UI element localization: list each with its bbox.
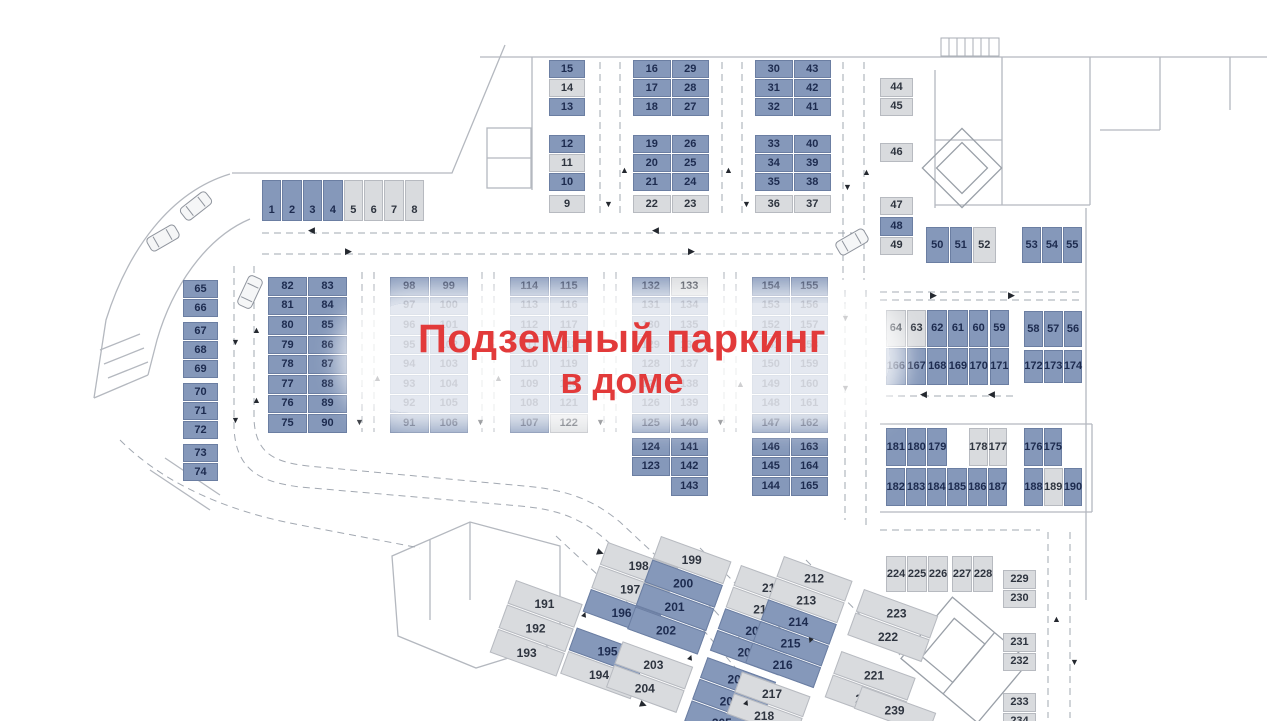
parking-spot-133[interactable]: 133 bbox=[671, 277, 709, 296]
direction-arrow: ▼ bbox=[604, 200, 613, 209]
parking-spot-number: 10 bbox=[561, 177, 573, 188]
parking-spot-85[interactable]: 85 bbox=[308, 316, 347, 335]
parking-spot-number: 11 bbox=[561, 158, 573, 169]
parking-spot-number: 41 bbox=[806, 102, 818, 113]
parking-spot-63[interactable]: 63 bbox=[907, 310, 927, 347]
parking-spot-65[interactable]: 65 bbox=[183, 280, 218, 298]
parking-spot-number: 147 bbox=[762, 418, 780, 429]
parking-spot-number: 195 bbox=[598, 646, 618, 658]
parking-spot-165[interactable]: 165 bbox=[791, 477, 829, 496]
parking-spot-122[interactable]: 122 bbox=[550, 414, 589, 433]
parking-spot-86[interactable]: 86 bbox=[308, 336, 347, 355]
parking-spot-number: 168 bbox=[928, 361, 946, 372]
parking-spot-163[interactable]: 163 bbox=[791, 438, 829, 457]
parking-spot-4[interactable]: 4 bbox=[323, 180, 342, 221]
parking-spot-48[interactable]: 48 bbox=[880, 217, 913, 236]
parking-spot-167[interactable]: 167 bbox=[907, 348, 927, 385]
parking-spot-82[interactable]: 82 bbox=[268, 277, 307, 296]
parking-spot-182[interactable]: 182 bbox=[886, 468, 905, 506]
parking-spot-number: 197 bbox=[621, 584, 641, 596]
parking-spot-5[interactable]: 5 bbox=[344, 180, 363, 221]
direction-arrow: ▲ bbox=[252, 326, 261, 335]
parking-spot-168[interactable]: 168 bbox=[927, 348, 947, 385]
parking-spot-124[interactable]: 124 bbox=[632, 438, 670, 457]
parking-spot-52[interactable]: 52 bbox=[973, 227, 996, 263]
parking-spot-number: 72 bbox=[194, 425, 206, 436]
parking-spot-88[interactable]: 88 bbox=[308, 375, 347, 394]
direction-arrow: ◀ bbox=[920, 390, 927, 399]
parking-spot-114[interactable]: 114 bbox=[510, 277, 549, 296]
parking-spot-number: 185 bbox=[948, 482, 966, 493]
parking-spot-number: 189 bbox=[1044, 482, 1062, 493]
parking-spot-181[interactable]: 181 bbox=[886, 428, 906, 466]
parking-spot-6[interactable]: 6 bbox=[364, 180, 383, 221]
parking-spot-number: 45 bbox=[890, 101, 902, 112]
parking-spot-number: 32 bbox=[768, 102, 780, 113]
parking-spot-number: 54 bbox=[1046, 240, 1058, 251]
parking-spot-227[interactable]: 227 bbox=[952, 556, 972, 592]
parking-spot-172[interactable]: 172 bbox=[1024, 350, 1043, 383]
parking-spot-76[interactable]: 76 bbox=[268, 395, 307, 414]
parking-spot-15[interactable]: 15 bbox=[549, 60, 585, 78]
parking-spot-8[interactable]: 8 bbox=[405, 180, 424, 221]
direction-arrow: ▼ bbox=[1070, 658, 1079, 667]
parking-spot-number: 7 bbox=[391, 205, 397, 220]
parking-spot-19[interactable]: 19 bbox=[633, 135, 671, 153]
parking-spot-number: 24 bbox=[684, 177, 696, 188]
parking-spot-54[interactable]: 54 bbox=[1042, 227, 1061, 263]
parking-spot-9[interactable]: 9 bbox=[549, 195, 585, 213]
parking-spot-90[interactable]: 90 bbox=[308, 414, 347, 433]
parking-spot-number: 89 bbox=[321, 398, 333, 409]
parking-spot-number: 214 bbox=[789, 616, 809, 628]
parking-spot-146[interactable]: 146 bbox=[752, 438, 790, 457]
parking-spot-46[interactable]: 46 bbox=[880, 143, 913, 162]
parking-spot-53[interactable]: 53 bbox=[1022, 227, 1041, 263]
parking-spot-2[interactable]: 2 bbox=[282, 180, 301, 221]
parking-spot-number: 233 bbox=[1010, 697, 1028, 708]
parking-spot-98[interactable]: 98 bbox=[390, 277, 429, 296]
parking-spot-number: 65 bbox=[194, 284, 206, 295]
parking-spot-number: 13 bbox=[561, 102, 573, 113]
parking-spot-number: 226 bbox=[929, 569, 947, 580]
parking-spot-67[interactable]: 67 bbox=[183, 322, 218, 340]
parking-spot-number: 141 bbox=[680, 442, 698, 453]
parking-spot-7[interactable]: 7 bbox=[384, 180, 403, 221]
parking-spot-number: 63 bbox=[910, 323, 922, 334]
parking-spot-number: 40 bbox=[806, 139, 818, 150]
parking-spot-number: 194 bbox=[589, 669, 609, 681]
parking-spot-141[interactable]: 141 bbox=[671, 438, 709, 457]
parking-spot-number: 73 bbox=[194, 448, 206, 459]
parking-spot-91[interactable]: 91 bbox=[390, 414, 429, 433]
parking-spot-228[interactable]: 228 bbox=[973, 556, 993, 592]
parking-spot-27[interactable]: 27 bbox=[672, 98, 710, 116]
parking-spot-178[interactable]: 178 bbox=[969, 428, 988, 466]
parking-spot-number: 2 bbox=[289, 205, 295, 220]
parking-spot-190[interactable]: 190 bbox=[1064, 468, 1083, 506]
parking-spot-132[interactable]: 132 bbox=[632, 277, 670, 296]
parking-spot-31[interactable]: 31 bbox=[755, 79, 793, 97]
parking-spot-number: 174 bbox=[1064, 361, 1082, 372]
parking-spot-number: 228 bbox=[974, 569, 992, 580]
parking-spot-1[interactable]: 1 bbox=[262, 180, 281, 221]
parking-spot-number: 91 bbox=[403, 418, 415, 429]
parking-spot-number: 143 bbox=[680, 481, 698, 492]
parking-spot-24[interactable]: 24 bbox=[672, 173, 710, 191]
parking-spot-number: 144 bbox=[762, 481, 780, 492]
parking-spot-229[interactable]: 229 bbox=[1003, 570, 1036, 589]
parking-spot-number: 17 bbox=[646, 83, 658, 94]
parking-spot-number: 66 bbox=[194, 303, 206, 314]
parking-spot-35[interactable]: 35 bbox=[755, 173, 793, 191]
parking-spot-145[interactable]: 145 bbox=[752, 457, 790, 476]
parking-spot-number: 23 bbox=[684, 199, 696, 210]
parking-spot-78[interactable]: 78 bbox=[268, 355, 307, 374]
parking-spot-175[interactable]: 175 bbox=[1044, 428, 1063, 466]
parking-spot-224[interactable]: 224 bbox=[886, 556, 906, 592]
direction-arrow: ▼ bbox=[742, 200, 751, 209]
parking-spot-number: 67 bbox=[194, 326, 206, 337]
parking-spot-68[interactable]: 68 bbox=[183, 341, 218, 359]
parking-spot-164[interactable]: 164 bbox=[791, 457, 829, 476]
parking-spot-73[interactable]: 73 bbox=[183, 444, 218, 462]
parking-spot-70[interactable]: 70 bbox=[183, 383, 218, 401]
parking-spot-number: 42 bbox=[806, 83, 818, 94]
parking-spot-72[interactable]: 72 bbox=[183, 421, 218, 439]
parking-spot-37[interactable]: 37 bbox=[794, 195, 832, 213]
parking-spot-number: 78 bbox=[281, 359, 293, 370]
parking-spot-180[interactable]: 180 bbox=[907, 428, 927, 466]
parking-spot-32[interactable]: 32 bbox=[755, 98, 793, 116]
parking-spot-179[interactable]: 179 bbox=[927, 428, 947, 466]
parking-spot-170[interactable]: 170 bbox=[969, 348, 989, 385]
parking-spot-18[interactable]: 18 bbox=[633, 98, 671, 116]
parking-spot-231[interactable]: 231 bbox=[1003, 633, 1036, 652]
parking-spot-49[interactable]: 49 bbox=[880, 237, 913, 256]
parking-spot-number: 8 bbox=[411, 205, 417, 220]
parking-spot-number: 225 bbox=[908, 569, 926, 580]
parking-spot-42[interactable]: 42 bbox=[794, 79, 832, 97]
parking-spot-33[interactable]: 33 bbox=[755, 135, 793, 153]
parking-spot-125[interactable]: 125 bbox=[632, 414, 670, 433]
parking-spot-47[interactable]: 47 bbox=[880, 197, 913, 216]
parking-spot-39[interactable]: 39 bbox=[794, 154, 832, 172]
parking-spot-59[interactable]: 59 bbox=[990, 310, 1010, 347]
parking-spot-183[interactable]: 183 bbox=[906, 468, 925, 506]
parking-spot-number: 6 bbox=[371, 205, 377, 220]
parking-spot-number: 79 bbox=[281, 340, 293, 351]
parking-spot-number: 199 bbox=[682, 554, 702, 566]
parking-spot-number: 230 bbox=[1010, 593, 1028, 604]
parking-spot-number: 163 bbox=[800, 442, 818, 453]
parking-spot-74[interactable]: 74 bbox=[183, 463, 218, 481]
parking-spot-99[interactable]: 99 bbox=[430, 277, 469, 296]
parking-spot-number: 203 bbox=[644, 659, 664, 671]
parking-spot-20[interactable]: 20 bbox=[633, 154, 671, 172]
parking-spot-number: 29 bbox=[684, 64, 696, 75]
parking-spot-number: 20 bbox=[646, 158, 658, 169]
parking-spot-81[interactable]: 81 bbox=[268, 297, 307, 316]
parking-spot-45[interactable]: 45 bbox=[880, 98, 913, 117]
parking-spot-226[interactable]: 226 bbox=[928, 556, 948, 592]
direction-arrow: ▼ bbox=[596, 418, 605, 427]
parking-spot-number: 176 bbox=[1024, 442, 1042, 453]
parking-spot-142[interactable]: 142 bbox=[671, 457, 709, 476]
parking-spot-23[interactable]: 23 bbox=[672, 195, 710, 213]
parking-spot-77[interactable]: 77 bbox=[268, 375, 307, 394]
parking-spot-40[interactable]: 40 bbox=[794, 135, 832, 153]
parking-spot-188[interactable]: 188 bbox=[1024, 468, 1043, 506]
parking-spot-number: 82 bbox=[281, 281, 293, 292]
parking-spot-number: 221 bbox=[864, 670, 884, 682]
parking-spot-115[interactable]: 115 bbox=[550, 277, 589, 296]
parking-spot-10[interactable]: 10 bbox=[549, 173, 585, 191]
parking-spot-58[interactable]: 58 bbox=[1024, 311, 1043, 347]
parking-spot-number: 55 bbox=[1066, 240, 1078, 251]
parking-spot-60[interactable]: 60 bbox=[969, 310, 989, 347]
parking-spot-55[interactable]: 55 bbox=[1063, 227, 1082, 263]
parking-spot-number: 202 bbox=[656, 625, 676, 637]
parking-spot-number: 201 bbox=[665, 601, 685, 613]
direction-arrow: ▼ bbox=[476, 418, 485, 427]
parking-spot-187[interactable]: 187 bbox=[988, 468, 1007, 506]
parking-spot-87[interactable]: 87 bbox=[308, 355, 347, 374]
parking-spot-number: 125 bbox=[642, 418, 660, 429]
parking-spot-29[interactable]: 29 bbox=[672, 60, 710, 78]
parking-spot-14[interactable]: 14 bbox=[549, 79, 585, 97]
parking-spot-162[interactable]: 162 bbox=[791, 414, 829, 433]
parking-spot-number: 107 bbox=[520, 418, 538, 429]
parking-spot-number: 37 bbox=[806, 199, 818, 210]
parking-spot-186[interactable]: 186 bbox=[968, 468, 987, 506]
parking-spot-25[interactable]: 25 bbox=[672, 154, 710, 172]
parking-spot-51[interactable]: 51 bbox=[950, 227, 973, 263]
parking-spot-number: 231 bbox=[1010, 637, 1028, 648]
parking-spot-number: 81 bbox=[281, 300, 293, 311]
parking-spot-number: 198 bbox=[629, 560, 649, 572]
parking-spot-number: 22 bbox=[646, 199, 658, 210]
parking-spot-number: 30 bbox=[768, 64, 780, 75]
parking-spot-number: 60 bbox=[973, 323, 985, 334]
direction-arrow: ▶ bbox=[345, 247, 352, 256]
parking-spot-57[interactable]: 57 bbox=[1044, 311, 1063, 347]
parking-spot-44[interactable]: 44 bbox=[880, 78, 913, 97]
parking-spot-number: 227 bbox=[953, 569, 971, 580]
parking-spot-number: 62 bbox=[931, 323, 943, 334]
parking-spot-34[interactable]: 34 bbox=[755, 154, 793, 172]
parking-spot-232[interactable]: 232 bbox=[1003, 653, 1036, 672]
parking-spot-83[interactable]: 83 bbox=[308, 277, 347, 296]
parking-spot-number: 56 bbox=[1067, 324, 1079, 335]
parking-spot-number: 90 bbox=[321, 418, 333, 429]
parking-spot-233[interactable]: 233 bbox=[1003, 693, 1036, 712]
parking-spot-38[interactable]: 38 bbox=[794, 173, 832, 191]
parking-spot-41[interactable]: 41 bbox=[794, 98, 832, 116]
parking-spot-71[interactable]: 71 bbox=[183, 402, 218, 420]
parking-spot-30[interactable]: 30 bbox=[755, 60, 793, 78]
parking-spot-number: 123 bbox=[642, 461, 660, 472]
parking-spot-number: 18 bbox=[646, 102, 658, 113]
parking-spot-number: 124 bbox=[642, 442, 660, 453]
direction-arrow: ▲ bbox=[620, 166, 629, 175]
parking-spot-169[interactable]: 169 bbox=[948, 348, 968, 385]
direction-arrow: ▼ bbox=[716, 418, 725, 427]
parking-spot-185[interactable]: 185 bbox=[947, 468, 966, 506]
parking-spot-123[interactable]: 123 bbox=[632, 457, 670, 476]
parking-spot-number: 223 bbox=[887, 608, 907, 620]
parking-spot-144[interactable]: 144 bbox=[752, 477, 790, 496]
parking-spot-147[interactable]: 147 bbox=[752, 414, 790, 433]
parking-spot-number: 106 bbox=[440, 418, 458, 429]
parking-spot-61[interactable]: 61 bbox=[948, 310, 968, 347]
parking-spot-number: 64 bbox=[890, 323, 902, 334]
parking-spot-number: 191 bbox=[535, 598, 555, 610]
parking-spot-number: 31 bbox=[768, 83, 780, 94]
parking-spot-11[interactable]: 11 bbox=[549, 154, 585, 172]
parking-spot-number: 140 bbox=[680, 418, 698, 429]
parking-spot-number: 25 bbox=[684, 158, 696, 169]
parking-spot-number: 61 bbox=[952, 323, 964, 334]
parking-spot-number: 212 bbox=[805, 573, 825, 585]
parking-spot-number: 12 bbox=[561, 139, 573, 150]
parking-spot-number: 87 bbox=[321, 359, 333, 370]
parking-spot-number: 98 bbox=[403, 281, 415, 292]
parking-spot-number: 187 bbox=[989, 482, 1007, 493]
parking-spot-number: 183 bbox=[907, 482, 925, 493]
parking-spot-number: 213 bbox=[797, 594, 817, 606]
parking-spot-number: 52 bbox=[978, 240, 990, 251]
parking-spot-56[interactable]: 56 bbox=[1064, 311, 1083, 347]
parking-spot-177[interactable]: 177 bbox=[989, 428, 1008, 466]
parking-spot-number: 155 bbox=[800, 281, 818, 292]
parking-spot-number: 9 bbox=[564, 199, 570, 210]
parking-spot-number: 47 bbox=[890, 200, 902, 211]
parking-spot-number: 192 bbox=[526, 622, 546, 634]
parking-spot-number: 34 bbox=[768, 158, 780, 169]
parking-spot-number: 99 bbox=[443, 281, 455, 292]
parking-spot-176[interactable]: 176 bbox=[1024, 428, 1043, 466]
parking-spot-number: 175 bbox=[1044, 442, 1062, 453]
parking-spot-number: 19 bbox=[646, 139, 658, 150]
parking-spot-number: 181 bbox=[887, 442, 905, 453]
parking-spot-number: 38 bbox=[806, 177, 818, 188]
parking-spot-64[interactable]: 64 bbox=[886, 310, 906, 347]
parking-spot-230[interactable]: 230 bbox=[1003, 590, 1036, 609]
parking-spot-number: 49 bbox=[890, 240, 902, 251]
direction-arrow: ▶ bbox=[1008, 291, 1015, 300]
parking-spot-number: 1 bbox=[269, 205, 275, 220]
banner-title-line1: Подземный паркинг bbox=[418, 316, 826, 362]
parking-spot-75[interactable]: 75 bbox=[268, 414, 307, 433]
parking-spot-number: 190 bbox=[1064, 482, 1082, 493]
parking-spot-80[interactable]: 80 bbox=[268, 316, 307, 335]
parking-spot-21[interactable]: 21 bbox=[633, 173, 671, 191]
parking-spot-number: 142 bbox=[680, 461, 698, 472]
parking-spot-50[interactable]: 50 bbox=[926, 227, 949, 263]
parking-spot-number: 229 bbox=[1010, 574, 1028, 585]
parking-spot-184[interactable]: 184 bbox=[927, 468, 946, 506]
parking-spot-36[interactable]: 36 bbox=[755, 195, 793, 213]
parking-spot-26[interactable]: 26 bbox=[672, 135, 710, 153]
parking-spot-number: 86 bbox=[321, 340, 333, 351]
parking-spot-107[interactable]: 107 bbox=[510, 414, 549, 433]
banner-title-line2: в доме bbox=[560, 362, 683, 400]
parking-spot-number: 145 bbox=[762, 461, 780, 472]
parking-spot-number: 188 bbox=[1024, 482, 1042, 493]
parking-spot-79[interactable]: 79 bbox=[268, 336, 307, 355]
parking-spot-number: 44 bbox=[890, 82, 902, 93]
parking-spot-number: 184 bbox=[927, 482, 945, 493]
parking-spot-89[interactable]: 89 bbox=[308, 395, 347, 414]
parking-spot-12[interactable]: 12 bbox=[549, 135, 585, 153]
parking-spot-number: 205 bbox=[712, 717, 732, 721]
parking-spot-22[interactable]: 22 bbox=[633, 195, 671, 213]
parking-spot-number: 218 bbox=[755, 710, 775, 721]
parking-spot-189[interactable]: 189 bbox=[1044, 468, 1063, 506]
direction-arrow: ◀ bbox=[308, 226, 315, 235]
parking-spot-number: 76 bbox=[281, 398, 293, 409]
parking-spot-28[interactable]: 28 bbox=[672, 79, 710, 97]
parking-spot-number: 68 bbox=[194, 345, 206, 356]
parking-spot-155[interactable]: 155 bbox=[791, 277, 829, 296]
parking-spot-140[interactable]: 140 bbox=[671, 414, 709, 433]
direction-arrow: ▲ bbox=[1052, 615, 1061, 624]
direction-arrow: ▲ bbox=[862, 168, 871, 177]
parking-spot-number: 80 bbox=[281, 320, 293, 331]
parking-spot-69[interactable]: 69 bbox=[183, 360, 218, 378]
parking-spot-234[interactable]: 234 bbox=[1003, 713, 1036, 721]
direction-arrow: ◀ bbox=[652, 226, 659, 235]
parking-spot-17[interactable]: 17 bbox=[633, 79, 671, 97]
parking-spot-number: 172 bbox=[1024, 361, 1042, 372]
parking-spot-number: 15 bbox=[561, 64, 573, 75]
parking-spot-number: 27 bbox=[684, 102, 696, 113]
parking-spot-number: 224 bbox=[887, 569, 905, 580]
parking-spot-154[interactable]: 154 bbox=[752, 277, 790, 296]
parking-spot-13[interactable]: 13 bbox=[549, 98, 585, 116]
direction-arrow: ▼ bbox=[843, 183, 852, 192]
parking-spot-number: 204 bbox=[635, 683, 655, 695]
direction-arrow: ▼ bbox=[231, 338, 240, 347]
parking-spot-number: 217 bbox=[762, 688, 782, 700]
parking-spot-66[interactable]: 66 bbox=[183, 299, 218, 317]
parking-spot-number: 167 bbox=[907, 361, 925, 372]
parking-spot-3[interactable]: 3 bbox=[303, 180, 322, 221]
parking-spot-number: 222 bbox=[878, 631, 898, 643]
parking-spot-number: 154 bbox=[762, 281, 780, 292]
parking-spot-number: 4 bbox=[330, 205, 336, 220]
parking-spot-43[interactable]: 43 bbox=[794, 60, 832, 78]
direction-arrow: ▶ bbox=[930, 291, 937, 300]
parking-spot-225[interactable]: 225 bbox=[907, 556, 927, 592]
parking-spot-number: 83 bbox=[321, 281, 333, 292]
parking-spot-number: 77 bbox=[281, 379, 293, 390]
parking-spot-62[interactable]: 62 bbox=[927, 310, 947, 347]
parking-spot-number: 51 bbox=[955, 240, 967, 251]
parking-spot-171[interactable]: 171 bbox=[990, 348, 1010, 385]
parking-spot-number: 53 bbox=[1026, 240, 1038, 251]
parking-spot-16[interactable]: 16 bbox=[633, 60, 671, 78]
parking-spot-174[interactable]: 174 bbox=[1064, 350, 1083, 383]
parking-spot-number: 69 bbox=[194, 364, 206, 375]
parking-spot-143[interactable]: 143 bbox=[671, 477, 709, 496]
parking-spot-106[interactable]: 106 bbox=[430, 414, 469, 433]
parking-spot-84[interactable]: 84 bbox=[308, 297, 347, 316]
parking-spot-number: 171 bbox=[990, 361, 1008, 372]
parking-spot-number: 232 bbox=[1010, 656, 1028, 667]
parking-spot-173[interactable]: 173 bbox=[1044, 350, 1063, 383]
